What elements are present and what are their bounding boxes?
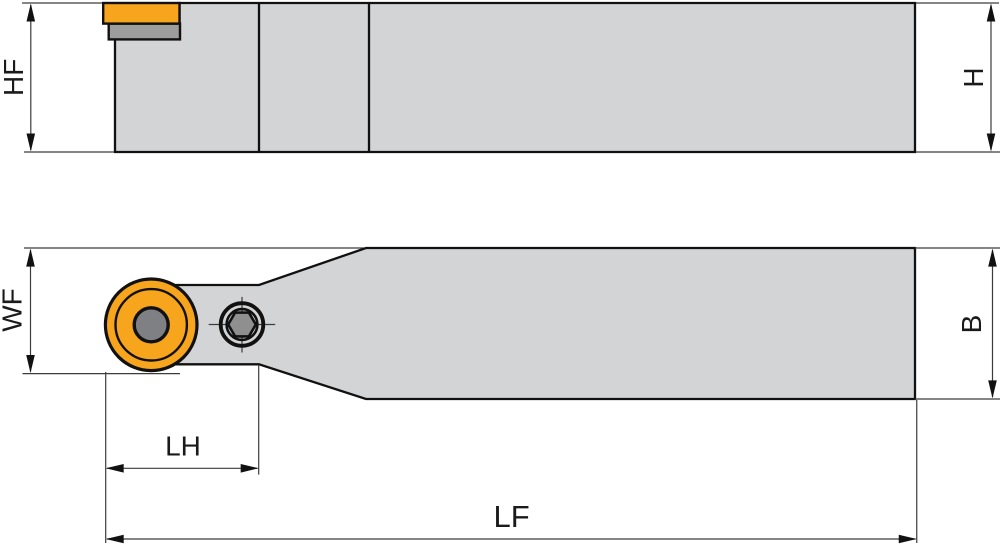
svg-text:LF: LF [494, 499, 530, 534]
svg-text:B: B [956, 315, 987, 334]
svg-text:H: H [958, 67, 989, 87]
svg-text:HF: HF [0, 59, 29, 96]
svg-text:WF: WF [0, 288, 28, 332]
svg-text:LH: LH [165, 431, 201, 462]
